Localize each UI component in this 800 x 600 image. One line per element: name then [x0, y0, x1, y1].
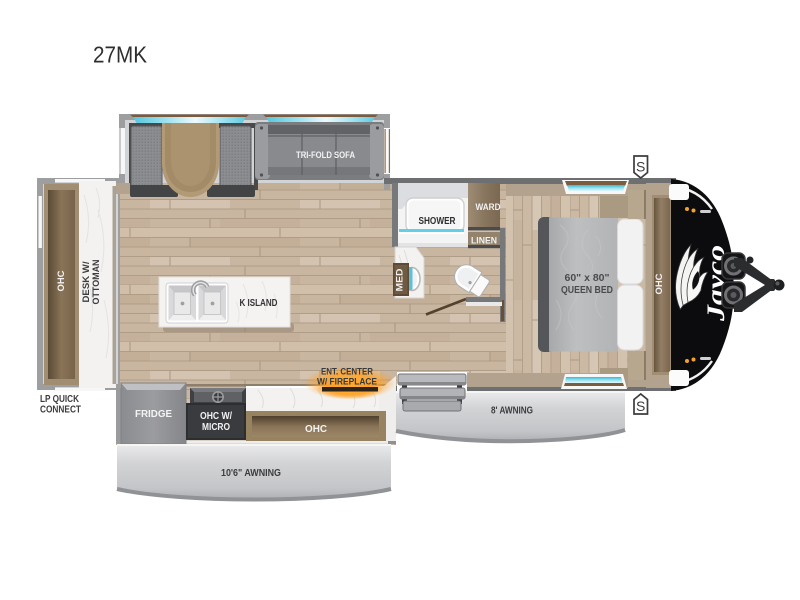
svg-text:27MK: 27MK	[93, 42, 148, 68]
svg-text:OTTOMAN: OTTOMAN	[91, 259, 102, 304]
svg-text:WARD: WARD	[476, 202, 501, 213]
svg-text:SHOWER: SHOWER	[419, 215, 456, 227]
svg-text:S: S	[636, 398, 645, 414]
svg-text:8' AWNING: 8' AWNING	[491, 406, 533, 417]
svg-text:W/ FIREPLACE: W/ FIREPLACE	[317, 377, 377, 388]
svg-text:MED: MED	[395, 268, 406, 291]
svg-text:10'6" AWNING: 10'6" AWNING	[221, 468, 281, 479]
svg-text:QUEEN BED: QUEEN BED	[561, 285, 613, 296]
svg-text:K ISLAND: K ISLAND	[240, 298, 278, 309]
svg-text:S: S	[636, 159, 645, 175]
svg-text:OHC: OHC	[654, 273, 665, 294]
svg-text:CONNECT: CONNECT	[40, 404, 81, 416]
svg-text:OHC: OHC	[305, 424, 327, 435]
svg-text:TRI-FOLD SOFA: TRI-FOLD SOFA	[296, 150, 355, 161]
svg-text:60" x 80": 60" x 80"	[565, 273, 610, 284]
svg-text:MICRO: MICRO	[202, 422, 230, 433]
svg-text:OHC: OHC	[56, 270, 67, 291]
svg-text:FRIDGE: FRIDGE	[135, 409, 172, 420]
svg-text:OHC W/: OHC W/	[200, 411, 232, 422]
svg-text:LINEN: LINEN	[471, 236, 497, 247]
